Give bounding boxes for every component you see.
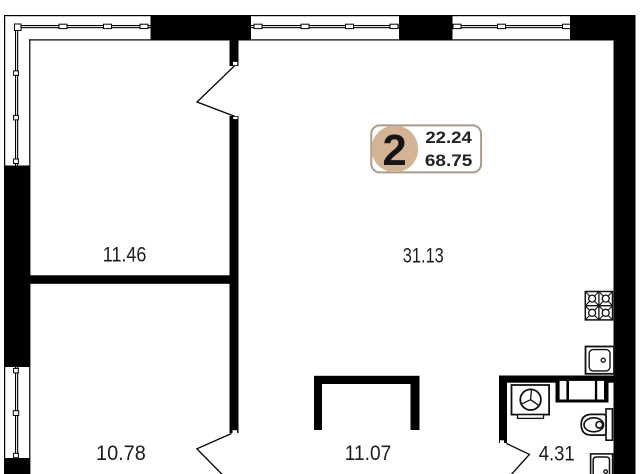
svg-text:4.31: 4.31 [539, 443, 575, 466]
svg-text:22.24: 22.24 [425, 128, 472, 147]
svg-text:68.75: 68.75 [425, 151, 473, 170]
svg-text:2: 2 [382, 127, 406, 175]
svg-text:11.46: 11.46 [103, 244, 147, 267]
svg-text:11.07: 11.07 [345, 442, 391, 465]
svg-text:31.13: 31.13 [403, 244, 444, 267]
svg-text:10.78: 10.78 [96, 442, 146, 465]
